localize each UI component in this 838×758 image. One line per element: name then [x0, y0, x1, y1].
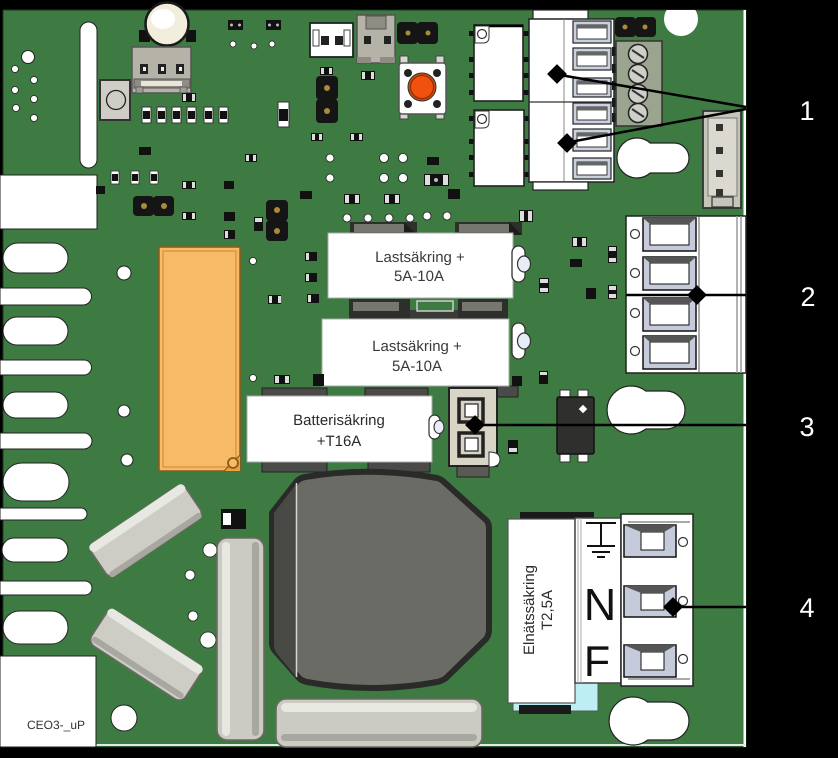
- svg-text:2: 2: [800, 282, 815, 312]
- svg-text:1: 1: [799, 96, 814, 126]
- svg-text:5A-10A: 5A-10A: [392, 358, 442, 375]
- svg-text:CEO3-_uP: CEO3-_uP: [27, 718, 85, 732]
- svg-text:4: 4: [799, 593, 814, 623]
- svg-text:Lastsäkring +: Lastsäkring +: [372, 338, 462, 355]
- svg-text:Lastsäkring +: Lastsäkring +: [375, 249, 465, 266]
- svg-text:N: N: [584, 579, 617, 630]
- svg-text:+T16A: +T16A: [317, 433, 362, 450]
- svg-text:F: F: [584, 638, 610, 686]
- svg-text:T2,5A: T2,5A: [539, 590, 556, 630]
- svg-text:Batterisäkring: Batterisäkring: [293, 412, 385, 429]
- svg-text:3: 3: [799, 412, 814, 442]
- svg-text:5A-10A: 5A-10A: [394, 268, 444, 285]
- svg-text:Elnätssäkring: Elnätssäkring: [521, 565, 538, 655]
